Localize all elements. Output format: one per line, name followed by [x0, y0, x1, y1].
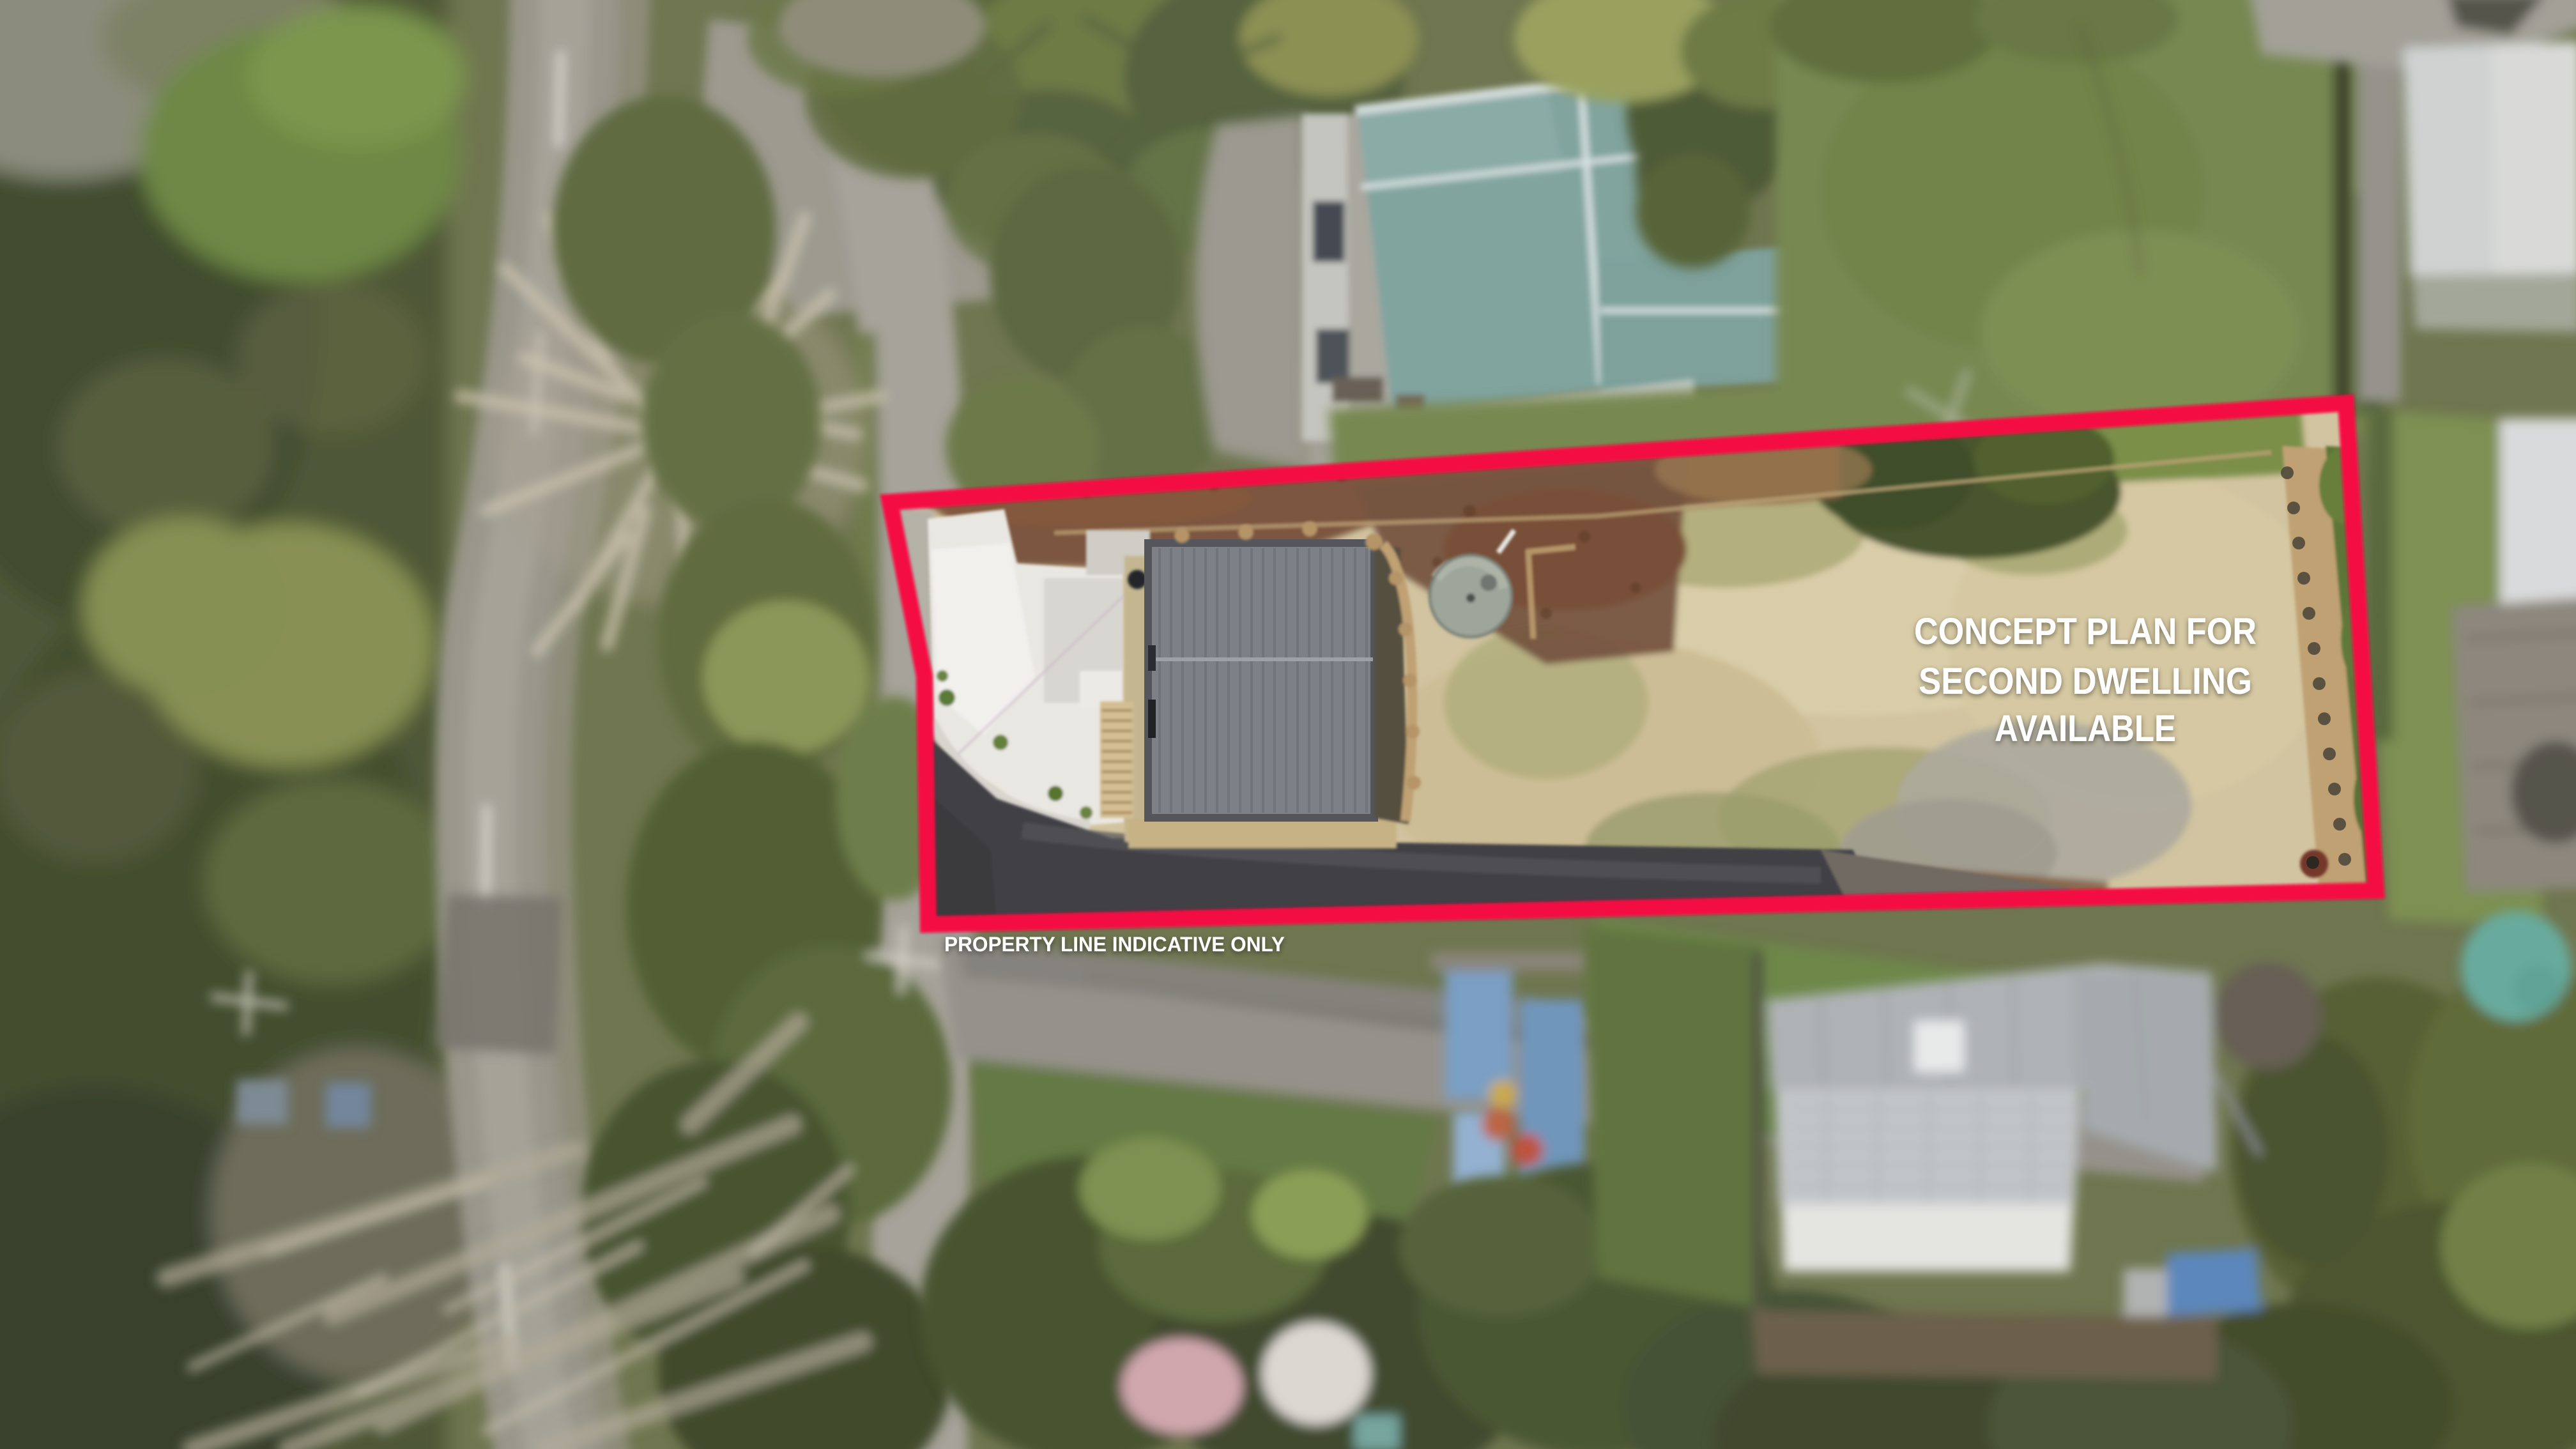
svg-text:PROPERTY LINE INDICATIVE ONLY: PROPERTY LINE INDICATIVE ONLY: [944, 933, 1285, 956]
svg-text:CONCEPT PLAN FOR: CONCEPT PLAN FOR: [1914, 611, 2257, 652]
svg-text:AVAILABLE: AVAILABLE: [1995, 708, 2176, 749]
svg-text:SECOND DWELLING: SECOND DWELLING: [1919, 661, 2252, 702]
